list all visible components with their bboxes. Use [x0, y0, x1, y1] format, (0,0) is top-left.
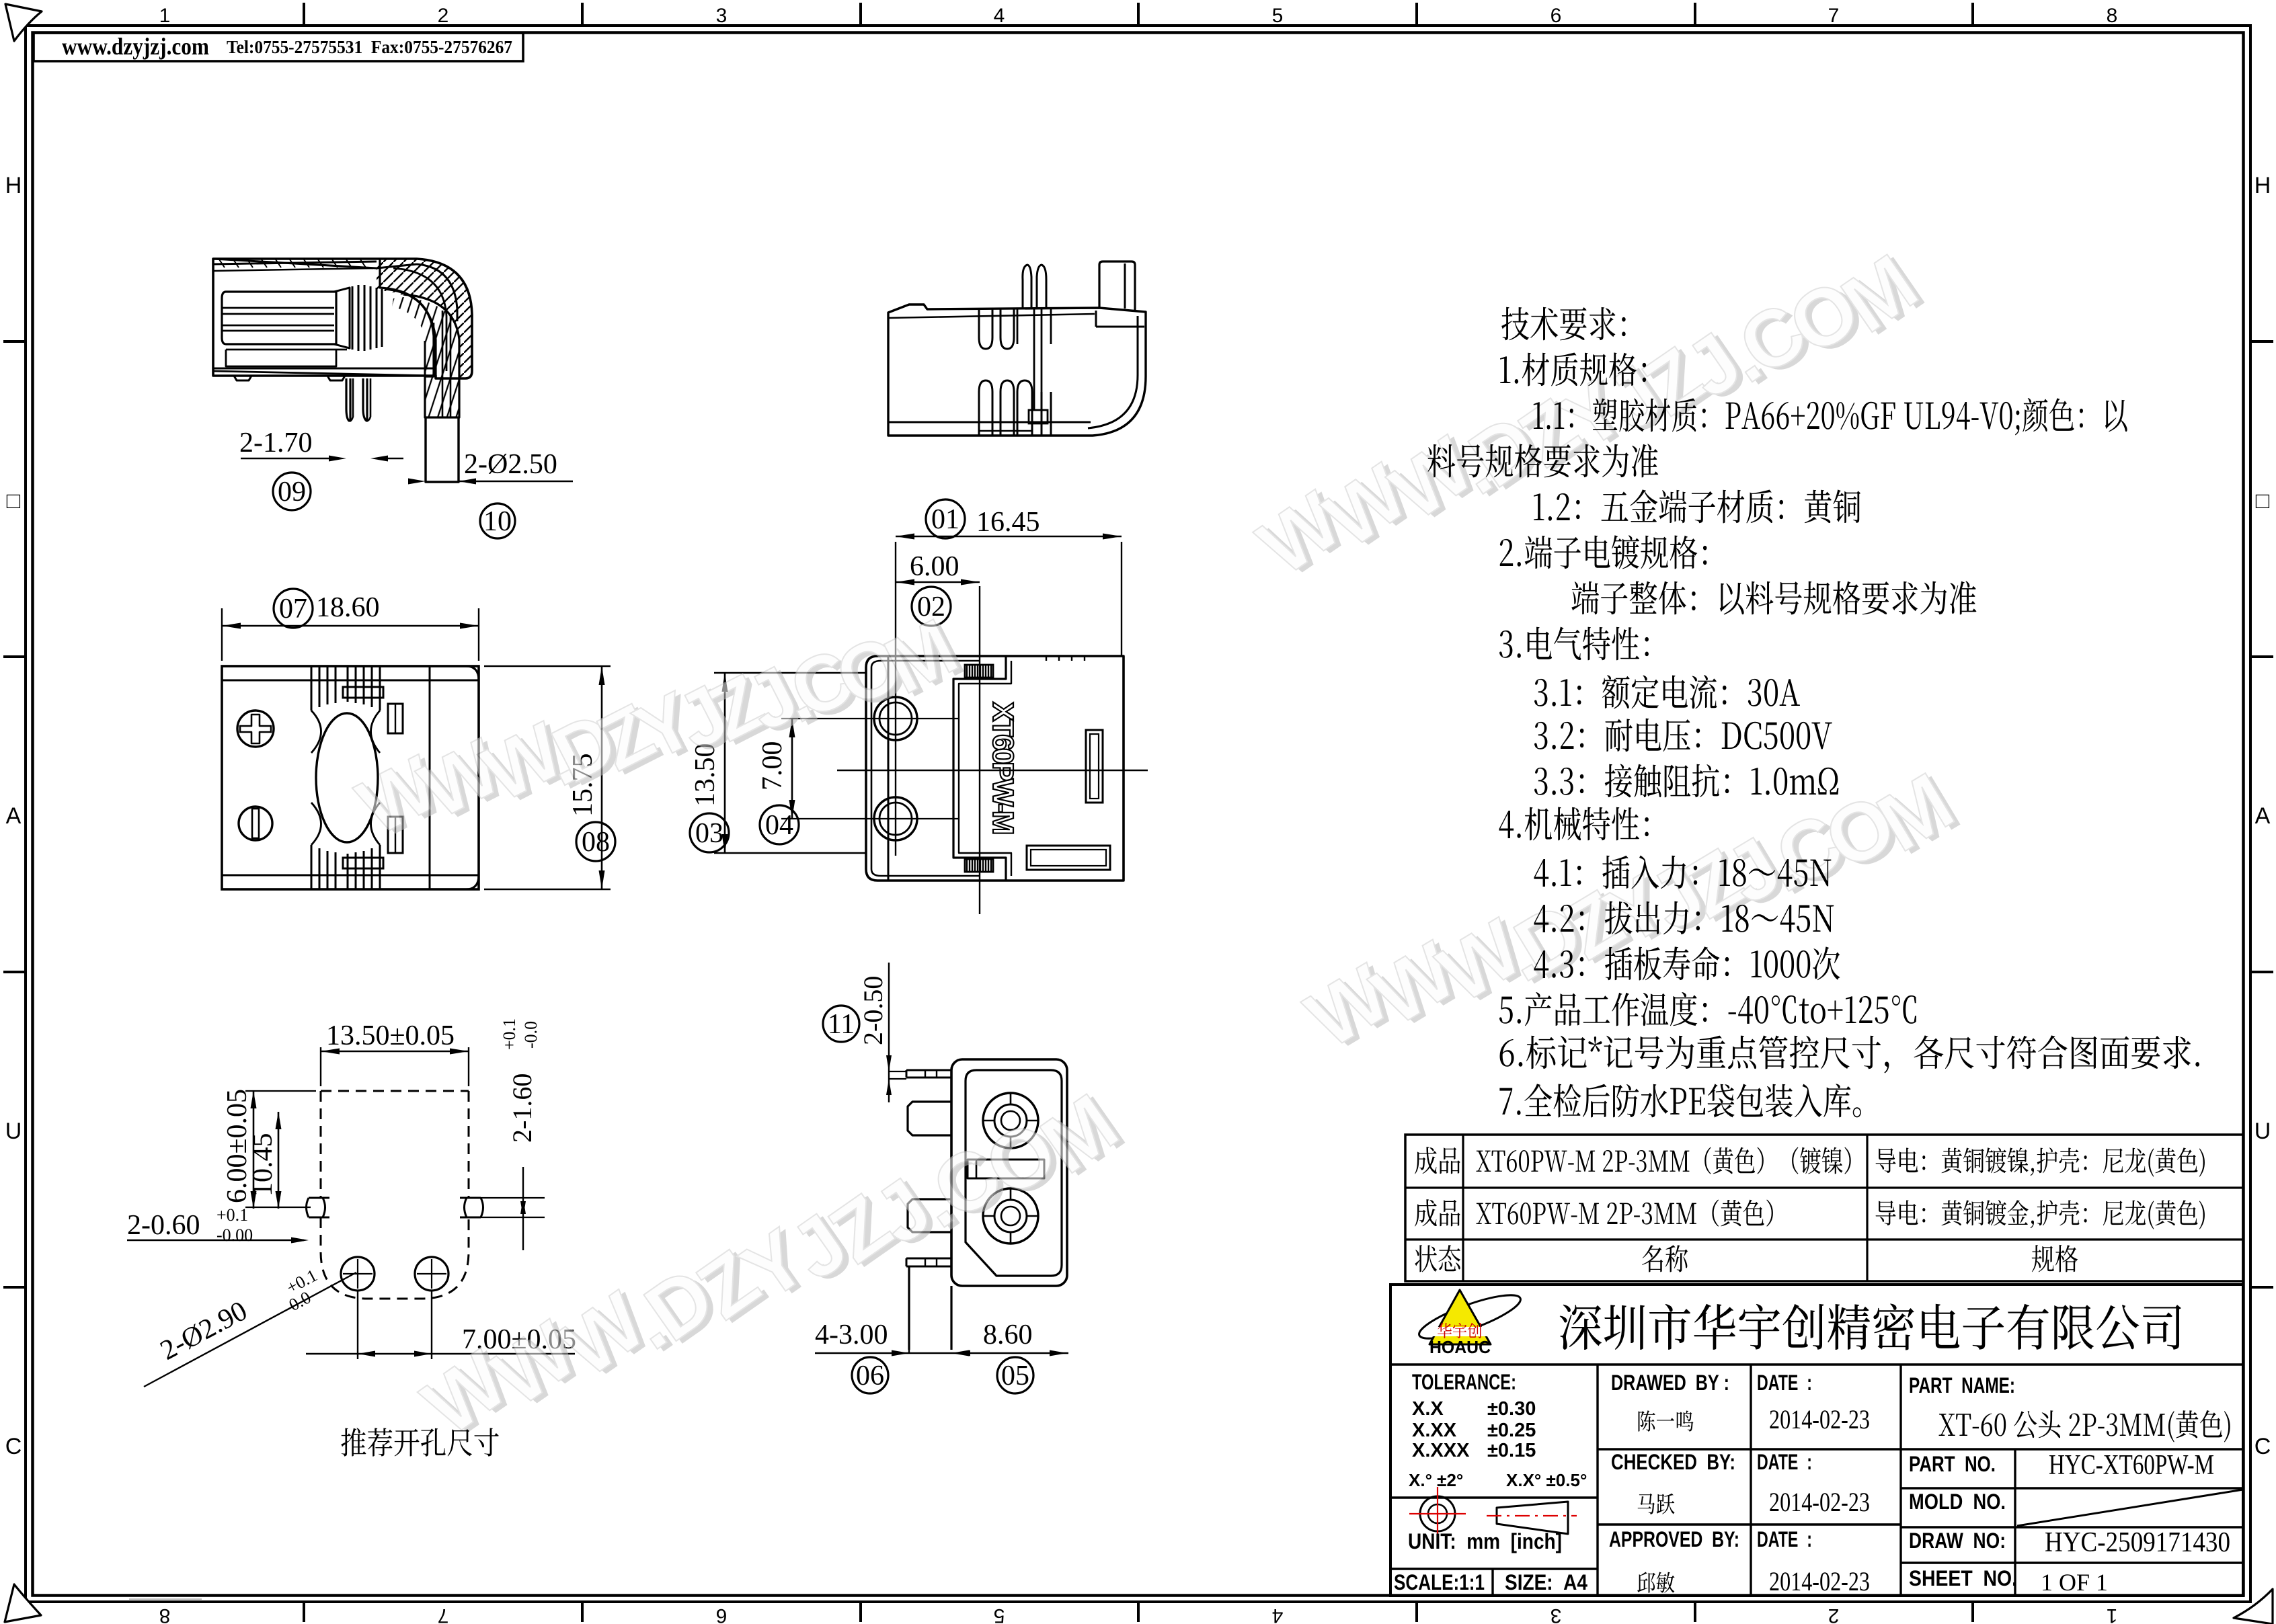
svg-text:2014-02-23: 2014-02-23	[1769, 1404, 1870, 1434]
svg-text:±0.30: ±0.30	[1487, 1398, 1536, 1420]
svg-text:4-3.00: 4-3.00	[815, 1319, 888, 1350]
svg-text:+0.1: +0.1	[217, 1205, 248, 1225]
svg-text:-0.00: -0.00	[217, 1225, 253, 1245]
svg-text:A: A	[6, 803, 22, 829]
svg-text:DATE :: DATE :	[1757, 1450, 1812, 1474]
svg-text:2-Ø2.50: 2-Ø2.50	[464, 449, 557, 480]
svg-text:8: 8	[159, 1605, 171, 1624]
svg-text:2-1.70: 2-1.70	[239, 428, 313, 458]
svg-text:10: 10	[483, 506, 512, 537]
svg-text:2-0.50: 2-0.50	[858, 976, 888, 1045]
svg-text:XT60PW-M: XT60PW-M	[986, 702, 1019, 834]
svg-text:2014-02-23: 2014-02-23	[1769, 1487, 1870, 1517]
svg-text:X.XXX: X.XXX	[1412, 1440, 1470, 1461]
svg-text:U: U	[2254, 1119, 2271, 1144]
svg-text:HOAUC: HOAUC	[1429, 1337, 1491, 1357]
svg-text:7: 7	[1828, 5, 1840, 27]
svg-text:08: 08	[582, 827, 610, 858]
svg-text:8: 8	[2107, 5, 2118, 27]
svg-text:MOLD NO.: MOLD NO.	[1909, 1490, 2006, 1514]
svg-text:APPROVED BY:: APPROVED BY:	[1609, 1527, 1739, 1551]
svg-text:SHEET NO.: SHEET NO.	[1909, 1566, 2017, 1590]
svg-text:TOLERANCE:: TOLERANCE:	[1412, 1370, 1516, 1394]
svg-text:HYC-XT60PW-M: HYC-XT60PW-M	[2049, 1450, 2214, 1481]
svg-text:±0.25: ±0.25	[1487, 1420, 1536, 1441]
svg-text:PART NAME:: PART NAME:	[1909, 1373, 2015, 1397]
svg-text:X.XX: X.XX	[1412, 1420, 1457, 1441]
svg-text:10.45: 10.45	[247, 1133, 278, 1197]
svg-text:DRAW NO:: DRAW NO:	[1909, 1529, 2006, 1553]
svg-text:A: A	[2255, 803, 2271, 829]
svg-text:HYC-2509171430: HYC-2509171430	[2045, 1527, 2230, 1558]
svg-text:2: 2	[438, 5, 449, 27]
svg-text:5: 5	[994, 1605, 1005, 1624]
svg-text:U: U	[5, 1119, 22, 1144]
svg-text:C: C	[2254, 1434, 2271, 1459]
svg-text:6.00: 6.00	[910, 551, 959, 582]
svg-text:www.dzyjzj.com: www.dzyjzj.com	[62, 33, 209, 60]
svg-text:2: 2	[1828, 1605, 1840, 1624]
svg-text:5: 5	[1272, 5, 1284, 27]
svg-text:4: 4	[994, 5, 1005, 27]
svg-text:11: 11	[828, 1009, 855, 1040]
svg-text:8.60: 8.60	[983, 1319, 1033, 1350]
svg-text:13.50±0.05: 13.50±0.05	[326, 1020, 455, 1051]
svg-text:X.X° ±0.5°: X.X° ±0.5°	[1506, 1470, 1587, 1490]
svg-text:1 OF 1: 1 OF 1	[2041, 1569, 2108, 1596]
svg-text:X.X: X.X	[1412, 1398, 1444, 1420]
svg-text:16.45: 16.45	[976, 507, 1040, 538]
svg-text:3: 3	[1551, 1605, 1562, 1624]
svg-text:7: 7	[438, 1605, 449, 1624]
svg-text:2-0.60: 2-0.60	[127, 1210, 200, 1241]
svg-text:18.60: 18.60	[316, 592, 380, 623]
svg-text:UNIT: mm [inch]: UNIT: mm [inch]	[1408, 1529, 1562, 1553]
svg-text:03: 03	[695, 818, 723, 849]
svg-text:2014-02-23: 2014-02-23	[1769, 1566, 1870, 1596]
svg-text:6: 6	[1551, 5, 1562, 27]
svg-text:PART NO.: PART NO.	[1909, 1452, 1996, 1476]
svg-text:3: 3	[716, 5, 728, 27]
svg-text:H: H	[5, 173, 22, 198]
svg-text:DATE :: DATE :	[1757, 1527, 1812, 1551]
svg-text:DRAWED BY :: DRAWED BY :	[1611, 1371, 1729, 1395]
svg-text:-0.0: -0.0	[521, 1021, 541, 1049]
svg-text:X.° ±2°: X.° ±2°	[1409, 1470, 1463, 1490]
svg-text:+0.1: +0.1	[500, 1018, 519, 1050]
svg-text:C: C	[5, 1434, 22, 1459]
svg-text:6: 6	[716, 1605, 728, 1624]
svg-text:01: 01	[931, 504, 959, 535]
svg-text:□: □	[2256, 488, 2270, 514]
svg-text:4: 4	[1272, 1605, 1284, 1624]
svg-text:07: 07	[279, 594, 307, 624]
svg-text:SIZE: A4: SIZE: A4	[1505, 1570, 1587, 1594]
svg-text:2-1.60: 2-1.60	[507, 1073, 537, 1143]
svg-text:H: H	[2254, 173, 2271, 198]
svg-text:□: □	[7, 488, 21, 514]
svg-text:CHECKED BY:: CHECKED BY:	[1611, 1450, 1735, 1474]
svg-text:06: 06	[856, 1361, 884, 1391]
svg-text:Tel:0755-27575531 Fax:0755-27: Tel:0755-27575531 Fax:0755-27576267	[227, 37, 512, 57]
svg-text:±0.15: ±0.15	[1487, 1440, 1536, 1461]
svg-text:SCALE:1:1: SCALE:1:1	[1394, 1570, 1485, 1594]
svg-text:04: 04	[765, 810, 793, 841]
svg-text:1: 1	[2107, 1605, 2118, 1624]
svg-text:09: 09	[278, 477, 306, 507]
svg-text:1: 1	[159, 5, 171, 27]
svg-text:05: 05	[1001, 1361, 1029, 1391]
svg-text:DATE :: DATE :	[1757, 1371, 1812, 1395]
